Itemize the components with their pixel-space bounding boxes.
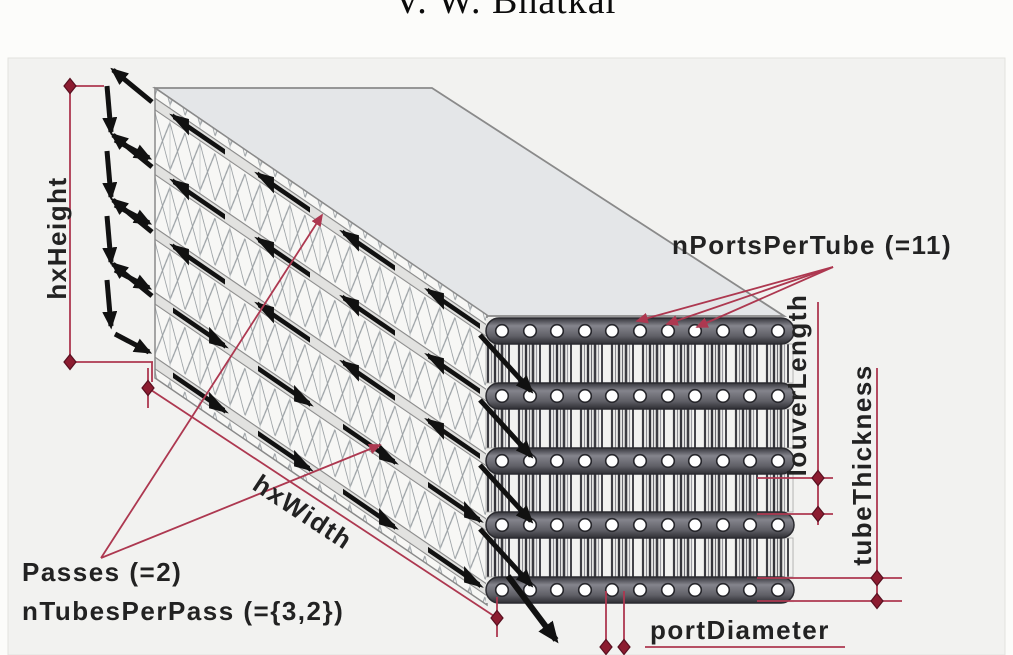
tube [486,512,794,538]
label-port-diameter: portDiameter [650,615,830,645]
label-n-tubes-per-pass: nTubesPerPass (={3,2}) [22,596,344,626]
louver-band [486,538,793,577]
heat-exchanger-figure: hxHeight hxWidth nPortsPerTube (=11) lou… [0,57,1013,655]
label-hx-height: hxHeight [42,176,72,299]
louver-band [486,474,793,512]
louver-band [486,409,793,448]
label-n-ports-per-tube: nPortsPerTube (=11) [672,230,952,260]
label-passes: Passes (=2) [22,557,182,587]
label-louver-length: louverLength [782,294,812,477]
louver-band [486,344,793,383]
core-front-face [486,318,794,603]
tube [486,318,794,344]
label-tube-thickness: tubeThickness [847,364,877,566]
tube [486,383,794,409]
tube [486,448,794,474]
tube [486,577,794,603]
page-header-author: V. W. Bhatkar [0,0,1013,23]
